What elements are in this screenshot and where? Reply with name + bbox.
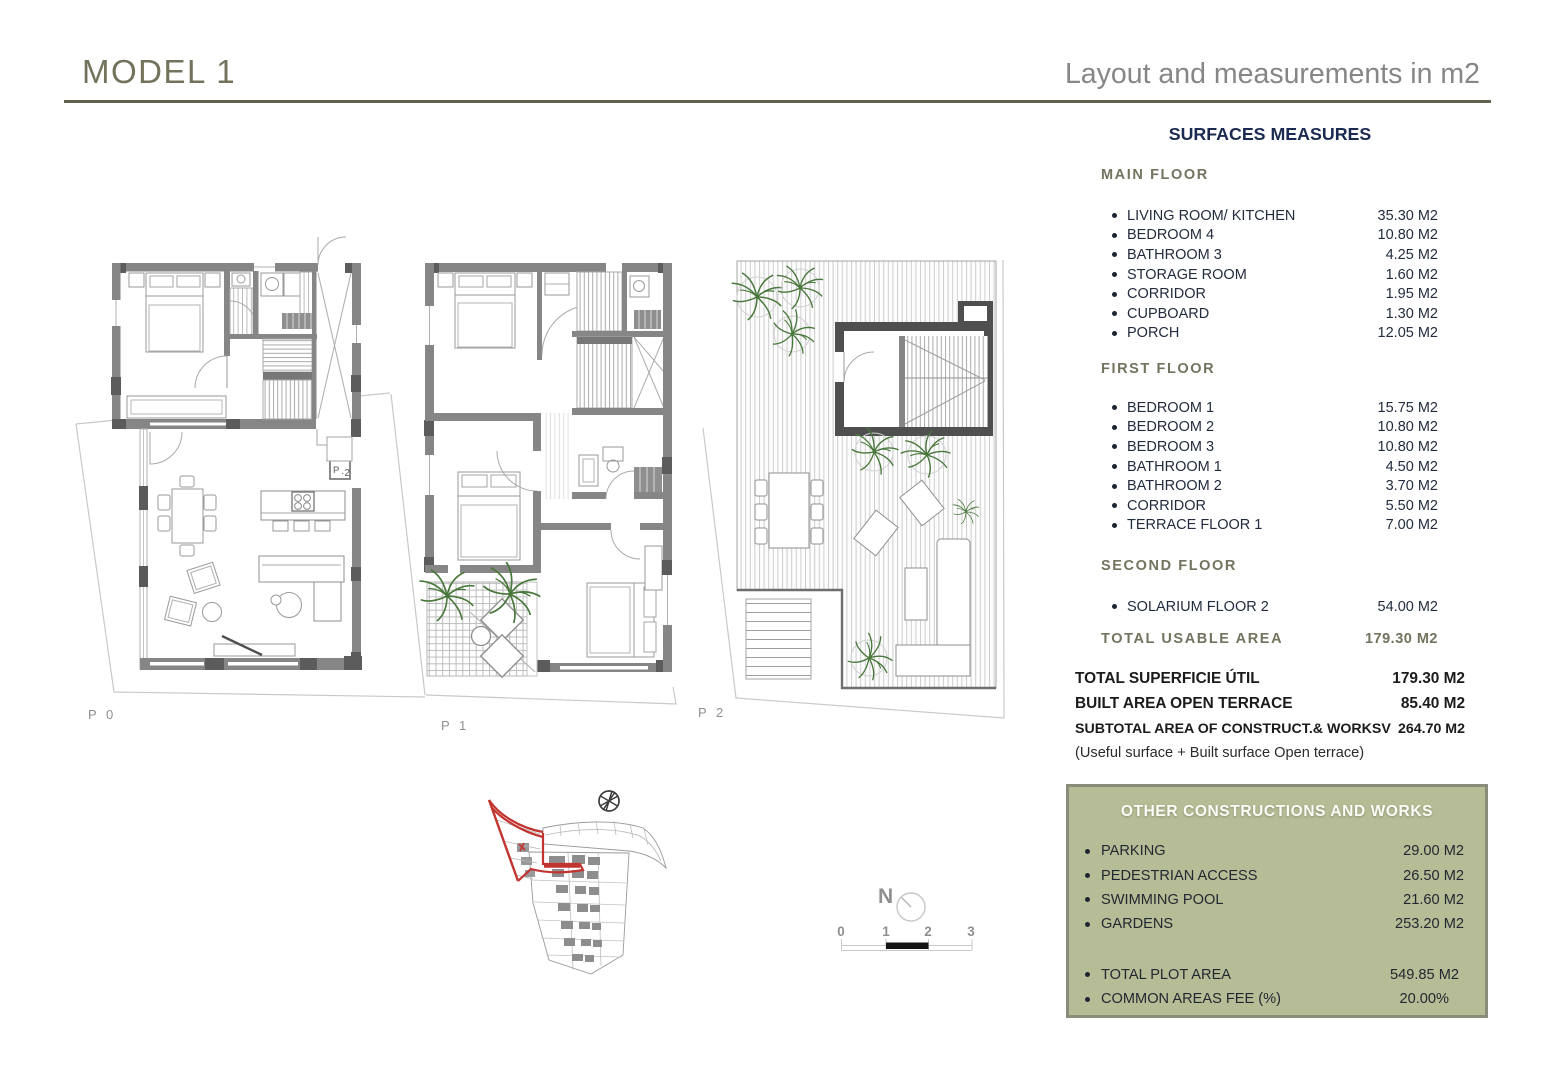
svg-text:P 1: P 1 — [441, 718, 469, 733]
svg-text:N: N — [878, 885, 893, 908]
svg-text:3: 3 — [967, 924, 975, 939]
svg-text:0: 0 — [837, 924, 845, 939]
svg-text:2: 2 — [924, 924, 932, 939]
svg-text:P 2: P 2 — [698, 705, 726, 720]
svg-text:1: 1 — [882, 924, 890, 939]
svg-text:P 0: P 0 — [88, 707, 116, 722]
svg-text:·2: ·2 — [341, 468, 350, 479]
svg-text:P: P — [333, 465, 339, 476]
